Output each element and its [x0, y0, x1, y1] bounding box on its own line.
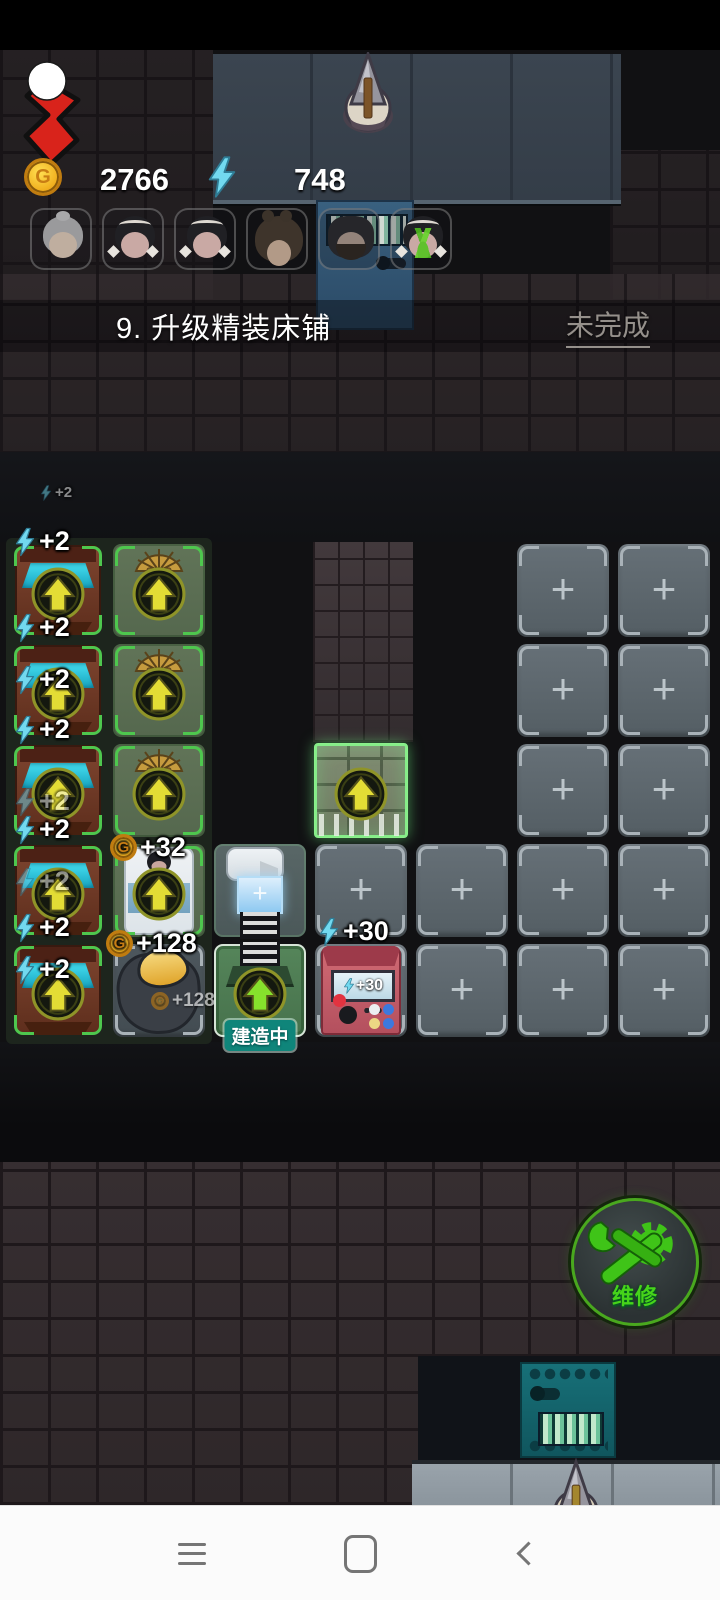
plus-glyph: + [450, 865, 475, 913]
tile-corner [688, 815, 708, 835]
tile-corner [183, 615, 203, 635]
tile-corner [486, 1015, 506, 1035]
plus-glyph: + [652, 665, 677, 713]
tile-corner [115, 546, 135, 566]
gain-amount: +2 [39, 714, 70, 745]
tile-corner [418, 1015, 438, 1035]
tile-corner [688, 546, 708, 566]
tile-corner [519, 746, 539, 766]
player-marker-icon[interactable] [14, 52, 86, 168]
tile-corner [688, 946, 708, 966]
plus-glyph: + [551, 865, 576, 913]
arcade-marquee [321, 946, 401, 966]
hair-knob [262, 210, 274, 222]
tile-corner [418, 915, 438, 935]
drill-column [240, 942, 280, 968]
tile-corner [82, 546, 102, 566]
ore-yield-text: +128 [172, 990, 215, 1012]
door-rivets-top [528, 1367, 608, 1381]
energy-bolt-icon [14, 815, 36, 845]
gain-amount: +2 [39, 814, 70, 845]
tile-corner [519, 1015, 539, 1035]
door-window [538, 1412, 604, 1446]
drill-energy-core [237, 876, 283, 914]
menu-icon [178, 1543, 206, 1565]
tile-corner [587, 746, 607, 766]
headband [191, 220, 223, 230]
tile-corner [688, 1015, 708, 1035]
arcade-button-yellow [369, 1018, 380, 1029]
building-status-label: 建造中 [224, 1020, 295, 1051]
grid-tile-plus[interactable]: + [515, 842, 611, 939]
tile-corner [519, 915, 539, 935]
arcade-button-blue [383, 1004, 394, 1015]
avatar-girl-bows[interactable] [174, 208, 236, 270]
game-screen: 9. 升级精装床铺 未完成 G 2766 748 [0, 0, 720, 1600]
plus-glyph: + [652, 765, 677, 813]
gain-amount: +2 [39, 612, 70, 643]
plus-glyph: + [551, 665, 576, 713]
tile-corner [82, 815, 102, 835]
tile-corner [115, 646, 135, 666]
energy-bolt-icon [14, 665, 36, 695]
tile-corner [317, 846, 337, 866]
coin-letter: G [35, 166, 51, 189]
grid-tile-plus[interactable]: + [515, 542, 611, 639]
tile-corner [183, 815, 203, 835]
tile-corner [486, 846, 506, 866]
arcade-button-white [369, 1004, 380, 1015]
nav-menu-button[interactable] [162, 1506, 222, 1600]
dark-corridor [0, 452, 720, 542]
tile-corner [519, 546, 539, 566]
gold-coin-icon: G [151, 992, 169, 1010]
tile-corner [587, 915, 607, 935]
avatar-grandma[interactable] [30, 208, 92, 270]
status-bar [0, 0, 720, 50]
tile-corner [14, 846, 34, 866]
energy-bolt-icon [14, 867, 36, 897]
tile-corner [486, 915, 506, 935]
plant-overlay-icon [410, 228, 436, 258]
quest-bar[interactable]: 9. 升级精装床铺 未完成 [0, 300, 720, 352]
upgrade-arrow-icon[interactable] [132, 567, 186, 621]
avatar-girl-plant[interactable] [390, 208, 452, 270]
avatar-face [49, 232, 77, 258]
gain-amount: +2 [39, 526, 70, 557]
energy-bolt-icon [14, 527, 36, 557]
plus-glyph: + [551, 965, 576, 1013]
grid-tile-bunk[interactable] [111, 542, 207, 639]
energy-gain-label: +2 [14, 866, 70, 897]
knight-statue-top [328, 52, 408, 136]
door-handle-icon [534, 1388, 560, 1400]
tile-corner [587, 1015, 607, 1035]
tile-corner [183, 746, 203, 766]
plus-glyph: + [349, 865, 374, 913]
plus-glyph: + [652, 565, 677, 613]
tile-corner [688, 615, 708, 635]
gold-coin-icon: G [24, 158, 62, 196]
tile-corner [620, 546, 640, 566]
grid-tile-plus[interactable]: + [616, 842, 712, 939]
tile-corner [587, 546, 607, 566]
gain-amount: +2 [39, 866, 70, 897]
quest-status-badge: 未完成 [566, 304, 650, 348]
tile-corner [14, 646, 34, 666]
plus-glyph: + [551, 765, 576, 813]
energy-bolt-icon [14, 955, 36, 985]
upgrade-arrow-icon[interactable] [132, 767, 186, 821]
energy-count: 748 [294, 162, 346, 198]
tile-corner [82, 615, 102, 635]
knight-statue-bottom [536, 1458, 616, 1505]
energy-bolt-icon [343, 978, 355, 994]
energy-gain-label: +2 [14, 664, 70, 695]
grid-tile-plus[interactable]: + [616, 642, 712, 739]
quest-title: 9. 升级精装床铺 [116, 305, 331, 347]
grid-tile-plus[interactable]: + [515, 942, 611, 1039]
grid-tile-arcade[interactable]: +30 [313, 942, 409, 1039]
gold-coin-icon: G [106, 930, 133, 957]
energy-bolt-icon [14, 913, 36, 943]
tile-corner [183, 846, 203, 866]
tile-corner [82, 715, 102, 735]
tile-corner [620, 1015, 640, 1035]
energy-gain-label: +2 [40, 484, 72, 501]
home-icon [344, 1535, 377, 1573]
tile-corner [519, 715, 539, 735]
tile-corner [82, 746, 102, 766]
avatar-face [193, 232, 221, 258]
energy-gain-label: +30 [318, 916, 389, 947]
drill-column [240, 912, 280, 939]
nav-home-button[interactable] [330, 1506, 390, 1600]
tile-corner [620, 815, 640, 835]
avatar-girl-bows[interactable] [102, 208, 164, 270]
gain-amount: +2 [39, 786, 70, 817]
gold-coin-icon: G [110, 834, 137, 861]
tile-corner [14, 746, 34, 766]
game-viewport[interactable]: 9. 升级精装床铺 未完成 G 2766 748 [0, 50, 720, 1505]
tile-corner [620, 615, 640, 635]
tile-corner [688, 915, 708, 935]
avatar-girl-buns[interactable] [246, 208, 308, 270]
energy-bolt-icon [14, 715, 36, 745]
gain-amount: +2 [39, 664, 70, 695]
tile-corner [519, 646, 539, 666]
tile-corner [486, 946, 506, 966]
tile-corner [587, 615, 607, 635]
hair-bun [56, 211, 70, 221]
tile-corner [587, 646, 607, 666]
nav-back-button[interactable] [498, 1506, 558, 1600]
tile-corner [385, 846, 405, 866]
tile-corner [688, 746, 708, 766]
gain-amount: +30 [343, 916, 389, 947]
tile-corner [183, 546, 203, 566]
energy-gain-label: +2 [14, 786, 70, 817]
tile-corner [688, 646, 708, 666]
tile-corner [620, 746, 640, 766]
back-icon [516, 1541, 540, 1565]
energy-bolt-icon [14, 613, 36, 643]
arcade-cabinet[interactable]: +30 [321, 946, 401, 1035]
tile-corner [587, 815, 607, 835]
upgrade-arrow-icon[interactable] [334, 767, 388, 821]
tile-corner [519, 846, 539, 866]
grid-tile-gate[interactable] [313, 742, 409, 839]
tile-corner [620, 915, 640, 935]
energy-bolt-icon [318, 917, 340, 947]
plus-glyph: + [551, 565, 576, 613]
energy-gain-label: +2 [14, 526, 70, 557]
avatar-man-beard[interactable] [318, 208, 380, 270]
grid-tile-plus[interactable]: + [616, 942, 712, 1039]
brick-pillar [313, 542, 413, 742]
tile-corner [519, 615, 539, 635]
tile-corner [183, 715, 203, 735]
gain-amount: +2 [55, 484, 72, 501]
tile-corner [620, 715, 640, 735]
coin-gain-label: G+128 [106, 928, 197, 959]
tile-corner [183, 646, 203, 666]
tile-corner [82, 1015, 102, 1035]
energy-gain-label: +2 [14, 612, 70, 643]
tile-corner [418, 946, 438, 966]
plus-glyph: + [652, 865, 677, 913]
grid-tile-plus[interactable]: + [414, 842, 510, 939]
grid-tile-drill-build[interactable]: 建造中 [212, 942, 308, 1039]
tile-corner [519, 946, 539, 966]
gain-amount: +2 [39, 954, 70, 985]
repair-button-label: 维修 [612, 1279, 658, 1311]
avatar-face [121, 232, 149, 258]
tile-corner [620, 946, 640, 966]
headband [119, 220, 151, 230]
hair-knob [280, 210, 292, 222]
beard [336, 244, 366, 260]
energy-bolt-icon [14, 787, 36, 817]
coin-gain-label: G+32 [110, 832, 186, 863]
android-nav-bar [0, 1505, 720, 1600]
grid-tile-bunk[interactable] [111, 642, 207, 739]
tile-corner [620, 846, 640, 866]
plus-glyph: + [652, 965, 677, 1013]
teal-door [520, 1362, 616, 1458]
top-room-panel [213, 54, 621, 204]
gain-amount: +32 [140, 832, 186, 863]
grid-tile-plus[interactable]: + [616, 542, 712, 639]
tile-corner [688, 846, 708, 866]
grid-tile-plus[interactable]: + [414, 942, 510, 1039]
tile-corner [587, 946, 607, 966]
arcade-button-blue [383, 1018, 394, 1029]
upgrade-arrow-icon[interactable] [132, 867, 186, 921]
upgrade-arrow-icon[interactable] [132, 667, 186, 721]
dark-floor-band [0, 1042, 720, 1162]
tile-corner [82, 915, 102, 935]
avatar-face [267, 240, 291, 266]
tile-corner [82, 846, 102, 866]
grid-tile-plus[interactable]: + [515, 742, 611, 839]
repair-button[interactable]: 维修 [571, 1198, 699, 1326]
grid-tile-drill-top[interactable] [212, 842, 308, 939]
tile-corner [620, 646, 640, 666]
tile-corner [587, 715, 607, 735]
tile-corner [82, 946, 102, 966]
tile-corner [82, 646, 102, 666]
energy-bolt-icon [206, 156, 238, 198]
tile-corner [418, 846, 438, 866]
coin-count: 2766 [100, 162, 169, 198]
energy-gain-label: +2 [14, 714, 70, 745]
energy-gain-label: +2 [14, 814, 70, 845]
grid-tile-plus[interactable]: + [616, 742, 712, 839]
energy-gain-label: +2 [14, 912, 70, 943]
arcade-screen-text: +30 [356, 977, 383, 995]
tile-corner [519, 815, 539, 835]
plus-glyph: + [450, 965, 475, 1013]
energy-bolt-icon [40, 485, 52, 501]
grid-tile-plus[interactable]: + [515, 642, 611, 739]
gain-amount: +2 [39, 912, 70, 943]
arcade-joystick [339, 1006, 357, 1024]
upgrade-arrow-icon[interactable] [233, 967, 287, 1021]
tile-corner [115, 746, 135, 766]
tile-corner [688, 715, 708, 735]
energy-gain-label: +2 [14, 954, 70, 985]
ore-yield-label: G+128 [151, 990, 215, 1012]
gain-amount: +128 [136, 928, 197, 959]
grid-tile-bunk[interactable] [111, 742, 207, 839]
tile-corner [587, 846, 607, 866]
